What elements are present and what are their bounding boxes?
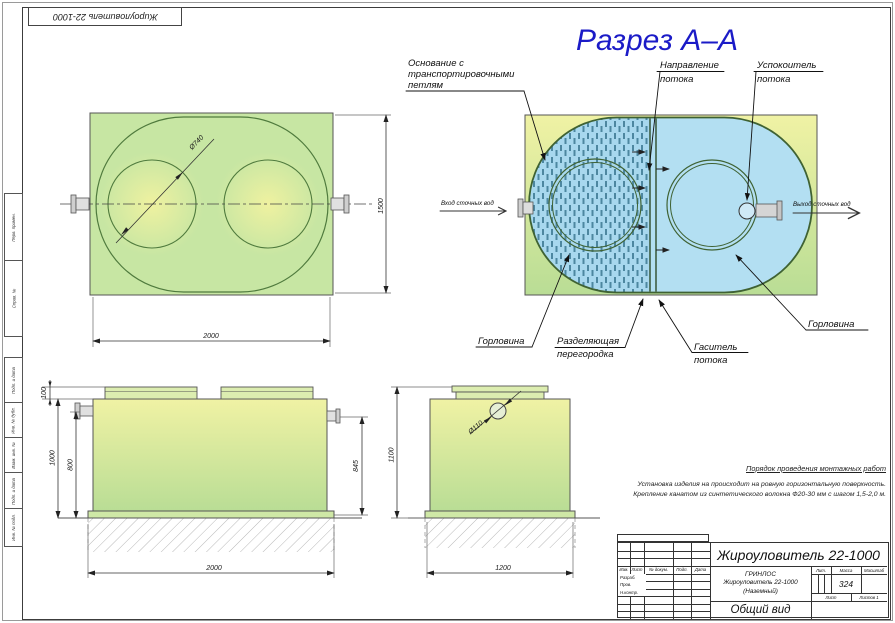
- tb-product-cell: ГРИНЛОС Жироуловитель 22-1000 (Наземный): [710, 566, 811, 601]
- svg-text:Успокоитель потока: Успокоитель потока: [756, 60, 819, 85]
- svg-text:Основание с транспор: Основание с транспортировочными петлям: [408, 58, 517, 91]
- front-dim-outlet-height: 845: [334, 417, 368, 515]
- tb-scale-label: Масштаб: [861, 566, 887, 574]
- tb-row-razrab: Разраб.: [618, 574, 646, 582]
- section-view: [518, 115, 817, 295]
- front-pipe-right: [327, 409, 340, 423]
- tb-row-prov: Пров.: [618, 581, 646, 589]
- front-dim-total-height: 1000: [50, 399, 59, 518]
- side-view: Ø110 1100 1200: [389, 386, 601, 578]
- svg-text:Горловина: Горловина: [808, 319, 854, 330]
- tb-col-podp: Подп.: [673, 566, 691, 574]
- drawing-canvas: Разрез А–А 2000: [0, 0, 895, 623]
- section-flow-stiller: [739, 203, 755, 219]
- svg-text:Вход сточных вод: Вход сточных вод: [441, 200, 494, 207]
- tb-col-data: Дата: [691, 566, 710, 574]
- callout-base: Основание с транспортировочными петлям: [406, 58, 545, 160]
- section-outlet-pipe: [756, 201, 782, 220]
- callout-flow-damper: Гаситель потока: [659, 300, 748, 366]
- svg-text:100: 100: [41, 387, 48, 399]
- tb-variant: (Наземный): [743, 588, 778, 596]
- svg-text:1000: 1000: [50, 450, 57, 466]
- svg-text:800: 800: [68, 459, 75, 471]
- tb-mass-value: 324: [831, 574, 861, 593]
- plan-dim-width: 2000: [93, 297, 330, 347]
- callout-partition: Разделяющая перегородка: [555, 299, 643, 360]
- front-lid-left: [105, 387, 197, 399]
- front-tank-body: [93, 399, 327, 511]
- front-lid-right: [221, 387, 313, 399]
- front-ground-hatch: [88, 518, 334, 552]
- plan-view: 2000 1500 Ø740: [60, 113, 391, 347]
- tb-lit-label: Лит.: [811, 566, 831, 574]
- notes-header: Порядок проведения монтажных работ: [624, 464, 886, 473]
- front-pipe-left: [75, 403, 93, 419]
- tb-view-title: Общий вид: [710, 601, 811, 619]
- side-ground-hatch: [425, 518, 575, 548]
- callout-inlet: Вход сточных вод: [440, 200, 505, 211]
- svg-text:Разделяющая перегоро: Разделяющая перегородка: [557, 336, 622, 360]
- front-dim-inlet-height: 800: [68, 412, 81, 518]
- svg-text:Выход сточных вод: Выход сточных вод: [793, 201, 851, 208]
- plan-pipe-left: [71, 195, 89, 213]
- side-lid: [452, 386, 548, 399]
- tb-mass-label: Масса: [831, 566, 861, 574]
- tb-doc-number: Жироуловитель 22-1000: [710, 543, 887, 566]
- installation-notes: Порядок проведения монтажных работ Устан…: [624, 464, 886, 500]
- tb-sheets-label: Листов 1: [851, 593, 887, 601]
- tb-col-izm: Изм.: [618, 566, 630, 574]
- tb-sheet-label: Лист: [811, 593, 851, 601]
- title-block-extension: [617, 534, 709, 542]
- tb-org: ГРИНЛОС: [745, 571, 776, 579]
- drawing-sheet: Жироуловитель 22-1000 Перв. примен. Спра…: [0, 0, 895, 623]
- side-base-slab: [425, 511, 575, 518]
- svg-text:1500: 1500: [378, 198, 385, 214]
- svg-text:1200: 1200: [495, 565, 511, 572]
- svg-text:Горловина: Горловина: [478, 336, 524, 347]
- tb-row-nkontr: Н.контр.: [618, 589, 646, 597]
- svg-text:Направление потока: Направление потока: [660, 60, 722, 85]
- tb-col-doc: № докум.: [644, 566, 673, 574]
- tb-col-list: Лист: [630, 566, 644, 574]
- section-title: Разрез А–А: [576, 24, 738, 57]
- front-view: 100 1000 800 845 2000: [41, 380, 368, 578]
- notes-line-1: Установка изделия на происходит на ровну…: [624, 480, 886, 490]
- front-base-slab: [88, 511, 334, 518]
- plan-pipe-right: [331, 195, 349, 213]
- svg-text:845: 845: [353, 460, 360, 472]
- title-block: Жироуловитель 22-1000 ГРИНЛОС Жироуловит…: [617, 542, 889, 618]
- svg-text:2000: 2000: [205, 565, 222, 572]
- svg-text:2000: 2000: [202, 333, 219, 340]
- svg-text:1100: 1100: [389, 447, 396, 462]
- notes-line-2: Крепление канатом из синтетического воло…: [624, 490, 886, 500]
- section-inlet-pipe: [518, 199, 533, 217]
- tb-product: Жироуловитель 22-1000: [723, 579, 797, 587]
- svg-text:Гаситель потока: Гаситель потока: [694, 342, 740, 366]
